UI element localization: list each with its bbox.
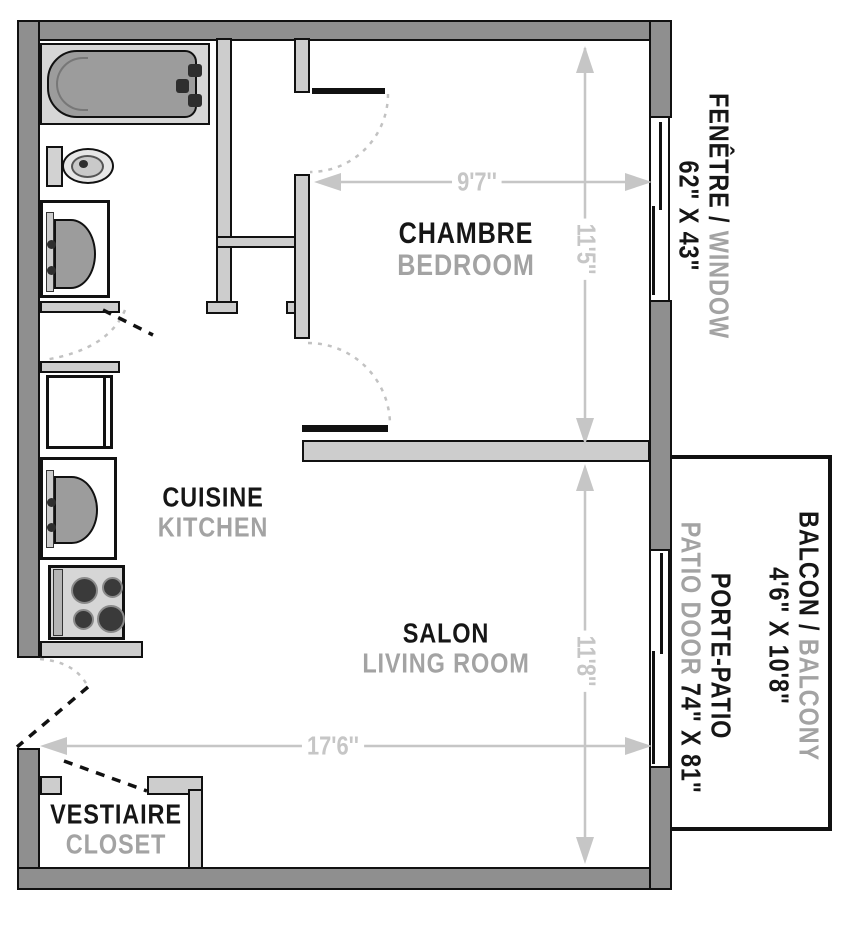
balcony-size-label: 4'6" X 10'8" xyxy=(764,502,794,771)
patio-door-label-en: PATIO DOOR xyxy=(676,522,707,683)
closet-door-line xyxy=(64,761,147,791)
window-size-label: 62" X 43" xyxy=(674,82,704,351)
kitchen-label-fr: CUISINE xyxy=(158,482,268,512)
living-room-label-en: LIVING ROOM xyxy=(362,648,529,678)
arrowhead-up2-icon xyxy=(576,464,594,491)
living-room-label: SALON LIVING ROOM xyxy=(346,618,545,677)
arrowhead-left2-icon xyxy=(40,737,67,755)
patio-door-label: PORTE-PATIO PATIO DOOR 74" X 81" xyxy=(676,496,735,816)
floor-plan: CHAMBRE BEDROOM CUISINE KITCHEN SALON LI… xyxy=(0,0,850,941)
closet-label: VESTIAIRE CLOSET xyxy=(38,799,195,858)
arrowhead-left-icon xyxy=(314,173,341,191)
dim-bedroom-depth: 11'5'' xyxy=(571,219,602,280)
balcony-label-en: BALCONY xyxy=(794,639,825,761)
arrowhead-right2-icon xyxy=(625,737,652,755)
balcony-label-fr: BALCON / xyxy=(794,511,825,639)
dim-bedroom-width: 9'7'' xyxy=(452,167,502,198)
arrowhead-up-icon xyxy=(576,46,594,73)
arrowhead-down2-icon xyxy=(576,837,594,864)
dim-living-width: 17'6'' xyxy=(302,731,364,762)
closet-label-en: CLOSET xyxy=(50,829,182,859)
dim-living-depth: 11'8'' xyxy=(571,631,602,692)
window-label-names: FENÊTRE / WINDOW xyxy=(704,82,734,351)
bedroom-label-fr: CHAMBRE xyxy=(397,218,534,250)
closet-label-fr: VESTIAIRE xyxy=(50,799,182,829)
bathroom-door-arc xyxy=(44,310,125,360)
balcony-label-names: BALCON / BALCONY xyxy=(794,502,824,771)
window-label-fr: FENÊTRE / xyxy=(704,93,735,231)
bedroom-closet-door-arc xyxy=(310,94,388,172)
entry-door-line xyxy=(17,687,88,747)
patio-door-label-line2: PATIO DOOR 74" X 81" xyxy=(676,522,706,791)
kitchen-label: CUISINE KITCHEN xyxy=(147,482,278,541)
balcony-label: BALCON / BALCONY 4'6" X 10'8" xyxy=(764,476,823,796)
patio-door-size-label: 74" X 81" xyxy=(676,683,707,794)
arrowhead-down-icon xyxy=(576,418,594,445)
bedroom-label-en: BEDROOM xyxy=(397,250,534,282)
kitchen-label-en: KITCHEN xyxy=(158,512,268,542)
window-label: FENÊTRE / WINDOW 62" X 43" xyxy=(674,56,733,376)
living-room-label-fr: SALON xyxy=(362,618,529,648)
bedroom-door-arc xyxy=(308,343,390,425)
bathroom-door-line xyxy=(103,310,153,335)
arrowhead-right-icon xyxy=(625,173,652,191)
bedroom-label: CHAMBRE BEDROOM xyxy=(384,218,548,282)
entry-door-arc xyxy=(40,659,88,687)
patio-door-label-fr: PORTE-PATIO xyxy=(706,522,736,791)
window-label-en: WINDOW xyxy=(704,231,735,339)
